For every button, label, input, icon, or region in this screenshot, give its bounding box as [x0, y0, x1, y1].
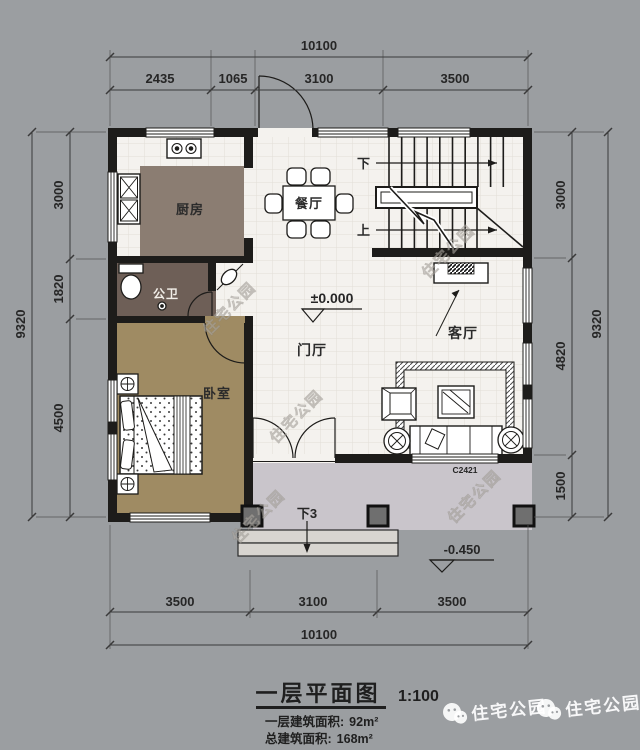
window: [130, 513, 210, 522]
porch-level-label: -0.450: [444, 542, 481, 557]
dim-left-seg: 3000: [51, 181, 66, 210]
porch-steps-label: 下3: [297, 506, 317, 521]
chair: [265, 194, 282, 213]
chair: [311, 221, 330, 238]
dim-top-seg: 2435: [146, 71, 175, 86]
chair: [287, 221, 306, 238]
window: [398, 128, 470, 137]
area-line-1: 一层建筑面积:92m²: [265, 714, 378, 729]
drawing-title: 一层平面图: [255, 681, 380, 706]
drawing-scale: 1:100: [398, 688, 439, 705]
sofa: [410, 426, 502, 456]
dim-right-seg: 1500: [553, 472, 568, 501]
stair-down-label: 下: [357, 156, 371, 171]
dim-right-total: 9320: [589, 310, 604, 339]
dim-top-seg: 1065: [219, 71, 248, 86]
entry-steps: [238, 530, 398, 556]
toilet: [121, 275, 141, 299]
window: [146, 128, 214, 137]
column: [368, 506, 388, 526]
chair: [287, 168, 306, 185]
kitchen-label: 厨房: [176, 202, 204, 217]
floor-plan-drawing: 下 上: [0, 0, 640, 750]
foyer-label: 门厅: [297, 342, 327, 358]
stair-up-label: 上: [357, 223, 371, 238]
floor-plan-page: 下 上: [0, 0, 640, 750]
window-code-label: C2421: [452, 465, 477, 475]
column: [514, 506, 534, 526]
window: [108, 172, 117, 242]
ground-level-label: ±0.000: [311, 290, 354, 306]
window: [318, 128, 388, 137]
window: [523, 268, 532, 323]
dim-right-seg: 3000: [553, 181, 568, 210]
dim-bottom-total: 10100: [301, 627, 337, 642]
chair: [336, 194, 353, 213]
dining-label: 餐厅: [294, 196, 323, 211]
dim-bottom-seg: 3100: [299, 594, 328, 609]
dim-left-seg: 1820: [51, 275, 66, 304]
dim-top-seg: 3100: [305, 71, 334, 86]
window-c2421: [412, 454, 498, 463]
chair: [311, 168, 330, 185]
title-underline: [256, 706, 386, 709]
dim-bottom-seg: 3500: [438, 594, 467, 609]
bath-label: 公卫: [153, 287, 179, 301]
dim-top-seg: 3500: [441, 71, 470, 86]
toilet-tank: [119, 264, 143, 273]
dim-bottom-seg: 3500: [166, 594, 195, 609]
area-line-2: 总建筑面积:168m²: [265, 731, 373, 746]
bedroom-label: 卧室: [203, 386, 231, 401]
dim-top-total: 10100: [301, 38, 337, 53]
back-door-opening: [258, 128, 312, 137]
dim-left-seg: 4500: [51, 404, 66, 433]
living-label: 客厅: [447, 325, 478, 341]
dim-left-total: 9320: [13, 310, 28, 339]
dim-right-seg: 4820: [553, 342, 568, 371]
